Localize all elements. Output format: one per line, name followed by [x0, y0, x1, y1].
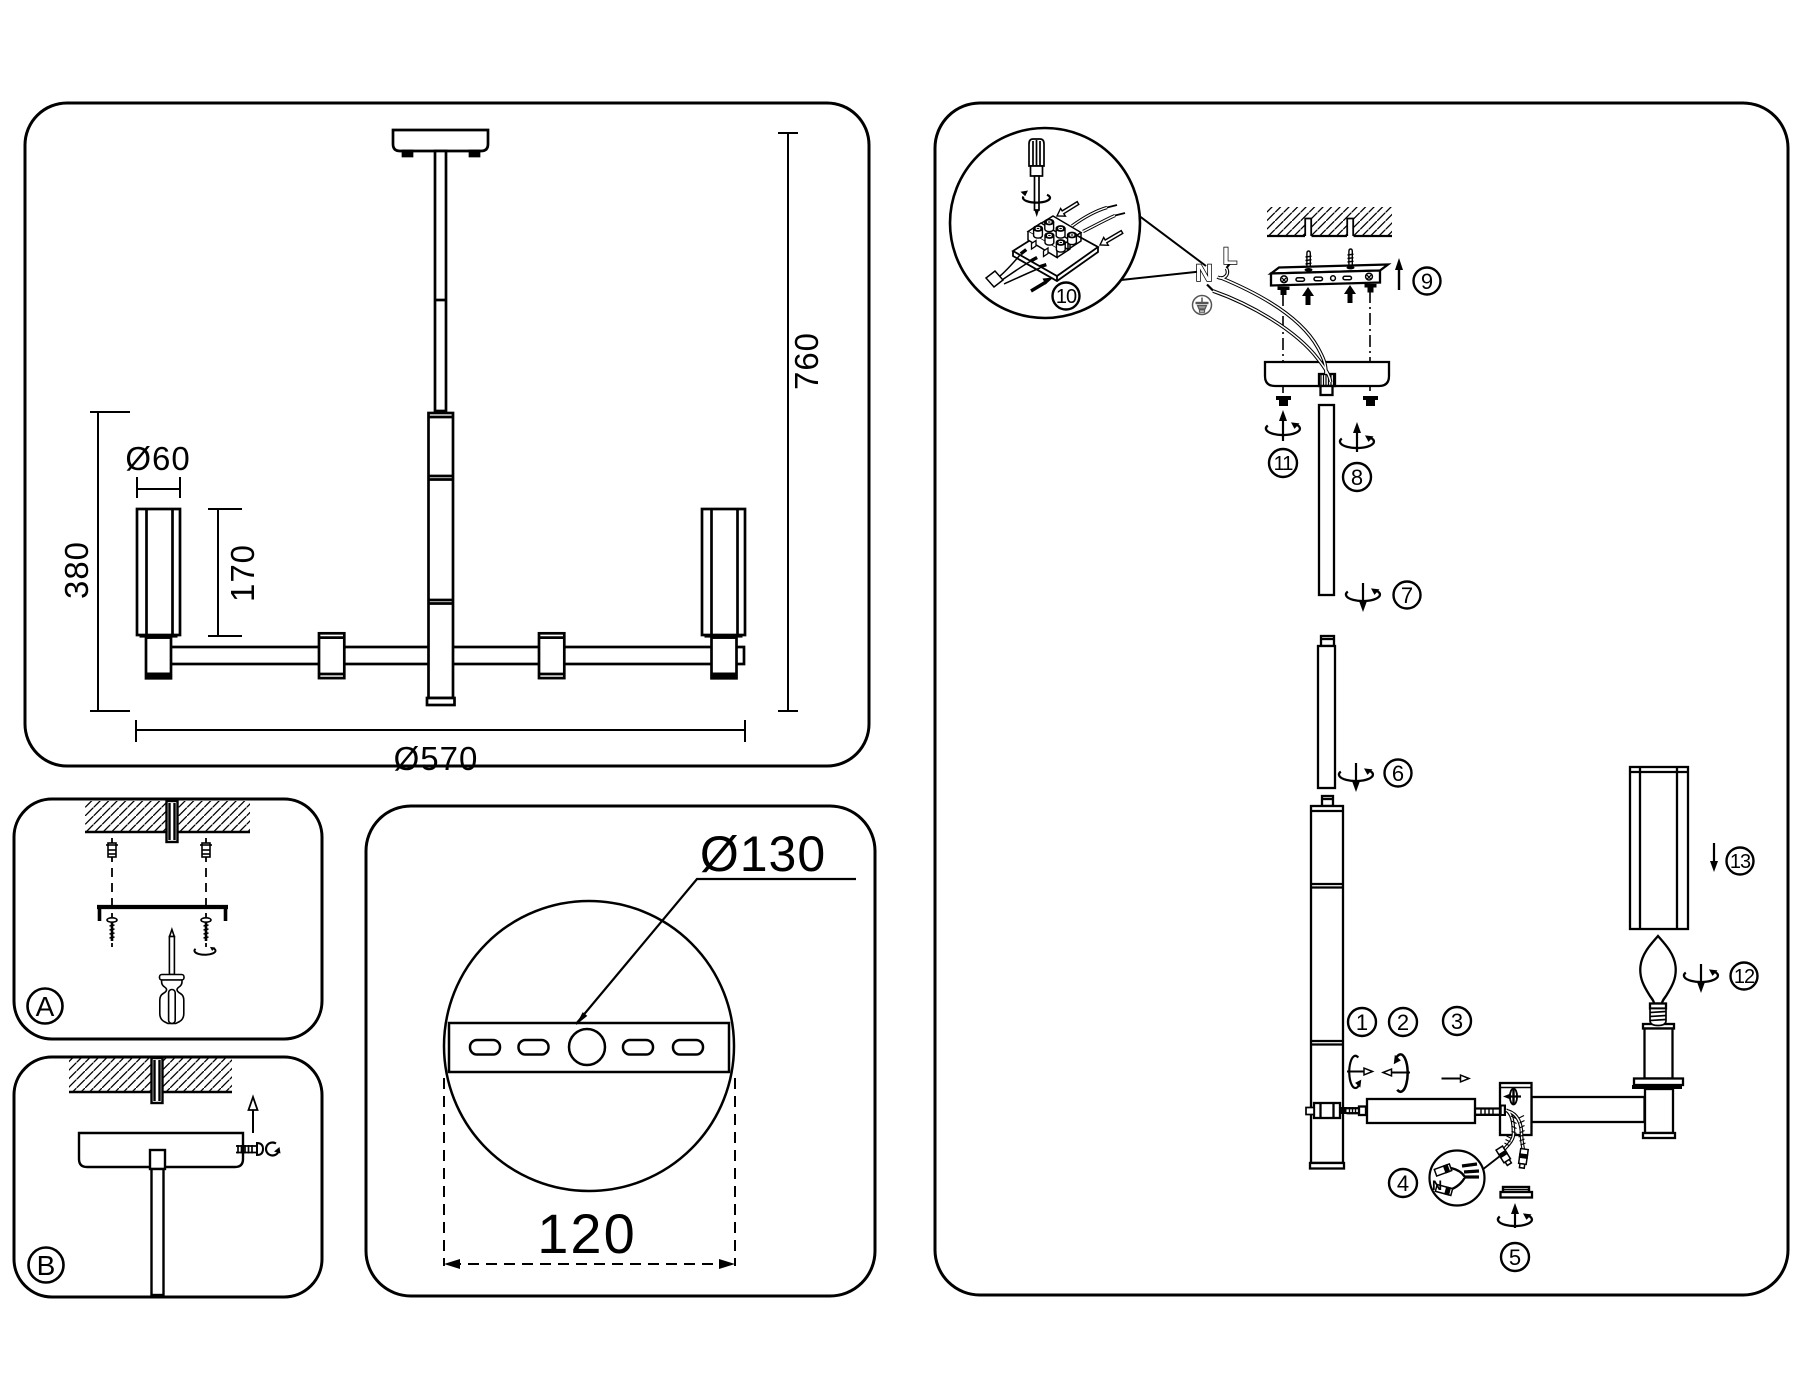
svg-text:N: N	[1432, 1177, 1442, 1193]
svg-text:L: L	[1223, 243, 1238, 270]
svg-text:N: N	[1195, 260, 1212, 287]
svg-text:Ø130: Ø130	[700, 826, 826, 882]
svg-text:10: 10	[1056, 286, 1077, 308]
svg-text:1: 1	[1356, 1010, 1368, 1035]
svg-text:2: 2	[1397, 1010, 1409, 1035]
svg-text:380: 380	[58, 541, 95, 599]
svg-text:B: B	[37, 1250, 56, 1281]
svg-text:4: 4	[1397, 1171, 1409, 1196]
svg-text:Ø570: Ø570	[394, 740, 479, 777]
svg-text:12: 12	[1734, 966, 1755, 988]
svg-text:11: 11	[1274, 453, 1294, 475]
svg-text:A: A	[36, 991, 55, 1022]
svg-text:9: 9	[1421, 269, 1433, 294]
svg-text:170: 170	[224, 544, 261, 602]
svg-text:120: 120	[537, 1202, 636, 1265]
svg-text:13: 13	[1730, 851, 1751, 873]
svg-text:5: 5	[1509, 1245, 1521, 1270]
svg-text:8: 8	[1351, 465, 1363, 490]
svg-text:3: 3	[1451, 1009, 1463, 1034]
svg-text:760: 760	[788, 332, 825, 390]
svg-text:Ø60: Ø60	[125, 440, 190, 477]
svg-text:6: 6	[1392, 761, 1404, 786]
svg-text:7: 7	[1401, 583, 1413, 608]
